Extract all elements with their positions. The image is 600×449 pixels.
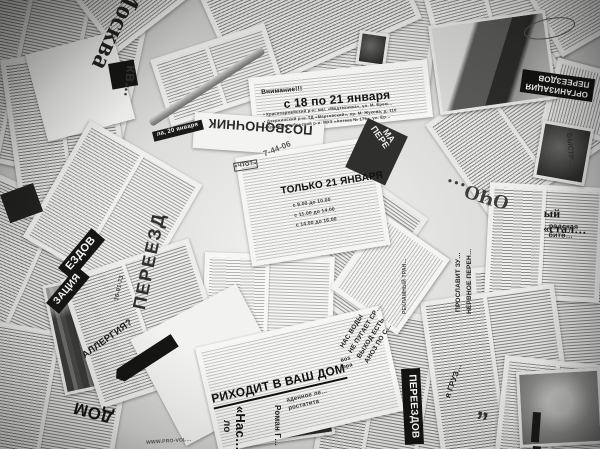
kv-headline: кв… [119,64,140,98]
photo-face [516,368,600,448]
roman-vertical: Роман Г… [272,405,282,446]
photo-dark-top [355,30,389,68]
reklamny-vertical: РЕКЛАМНЫЙ ТРАН… [402,258,408,314]
lo-vertical: ло [220,420,233,433]
nervnoe-vertical: НЕРВНОЕ ПЕРЕН… [466,248,474,314]
pereezdov-vertical-inverted: ПЕРЕЕЗДОВ [402,368,424,445]
gradskaya-bitva-subhead: радская битв… [548,223,600,242]
nas-vertical: «Нас… [232,406,248,449]
proslavit-vertical: ПРОСЛАВИТ ЗУ… [455,252,463,312]
schedule-lines: с 9.00 до 10.00 с 11.00 до 14.00 с 14.00… [292,195,338,231]
newsprint-collage-photo: Москвакв…Внимание!!!с 18 по 21 января• К… [0,0,600,449]
photo-pistol-small [533,120,594,186]
